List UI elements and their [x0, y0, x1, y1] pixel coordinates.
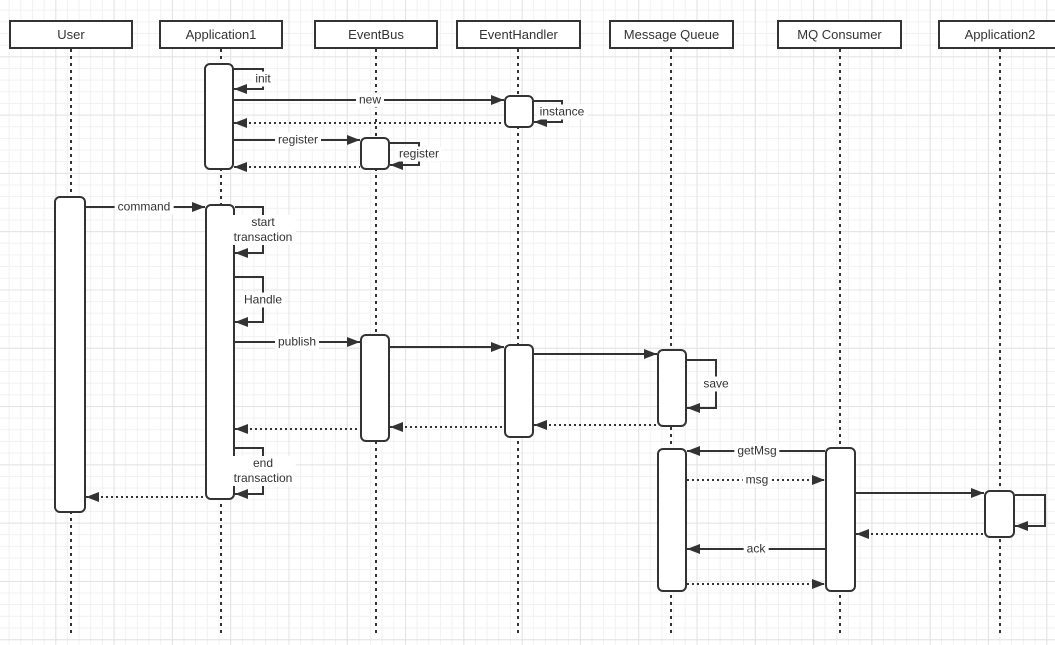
participant-label: User — [57, 27, 84, 42]
arrowhead-msg — [812, 475, 825, 485]
activation-eventhandler[interactable] — [504, 344, 534, 438]
activation-eventhandler[interactable] — [504, 95, 534, 128]
message-line-return-register[interactable] — [234, 166, 360, 168]
arrowhead-handler-to-queue — [644, 349, 657, 359]
participant-label: EventBus — [348, 27, 404, 42]
message-label-command[interactable]: command — [115, 200, 174, 215]
message-label-publish[interactable]: publish — [275, 335, 319, 350]
participant-label: Application2 — [965, 27, 1036, 42]
message-label-ack[interactable]: ack — [744, 542, 769, 557]
message-line-return-bus-app1[interactable] — [235, 428, 360, 430]
message-line-handler-to-queue[interactable] — [534, 353, 657, 355]
message-line-consumer-to-app2[interactable] — [856, 492, 984, 494]
message-label-end-transaction[interactable]: end transaction — [231, 456, 296, 486]
arrowhead-return-instance — [234, 118, 247, 128]
arrowhead-start-transaction — [235, 248, 248, 258]
message-label-handle[interactable]: Handle — [241, 292, 285, 307]
activation-user[interactable] — [54, 196, 86, 513]
activation-eventbus[interactable] — [360, 334, 390, 442]
arrowhead-new — [491, 95, 504, 105]
participant-label: Message Queue — [624, 27, 719, 42]
arrowhead-handle — [235, 317, 248, 327]
participant-application1[interactable]: Application1 — [159, 20, 283, 49]
message-line-return-queue-consumer[interactable] — [687, 583, 825, 585]
arrowhead-return-queue-handler — [534, 420, 547, 430]
arrowhead-app2-self — [1015, 521, 1028, 531]
message-line-return-instance[interactable] — [234, 122, 504, 124]
diagram-canvas: initnewinstanceregisterregistercommandst… — [0, 0, 1055, 645]
activation-mq-consumer[interactable] — [825, 447, 856, 592]
participant-eventbus[interactable]: EventBus — [314, 20, 438, 49]
arrowhead-save — [687, 403, 700, 413]
lifeline-application2 — [999, 49, 1001, 633]
message-label-start-transaction[interactable]: start transaction — [231, 215, 296, 245]
arrowhead-return-handler-bus — [390, 422, 403, 432]
participant-label: EventHandler — [479, 27, 558, 42]
message-label-register[interactable]: register — [275, 133, 321, 148]
message-line-bus-to-handler[interactable] — [390, 346, 504, 348]
arrowhead-return-register — [234, 162, 247, 172]
arrowhead-return-queue-consumer — [812, 579, 825, 589]
activation-application2[interactable] — [984, 490, 1015, 538]
message-line-return-app2-consumer[interactable] — [856, 533, 984, 535]
message-label-register-self[interactable]: register — [396, 147, 442, 162]
arrowhead-register-self — [390, 160, 403, 170]
arrowhead-command — [192, 202, 205, 212]
activation-message-queue[interactable] — [657, 349, 687, 427]
message-label-new[interactable]: new — [356, 93, 384, 108]
arrowhead-return-app1-user — [86, 492, 99, 502]
participant-user[interactable]: User — [9, 20, 133, 49]
message-label-init[interactable]: init — [252, 72, 273, 87]
message-line-return-handler-bus[interactable] — [390, 426, 504, 428]
activation-application1[interactable] — [204, 63, 234, 170]
participant-eventhandler[interactable]: EventHandler — [456, 20, 581, 49]
participant-label: Application1 — [186, 27, 257, 42]
message-line-return-app1-user[interactable] — [86, 496, 205, 498]
arrowhead-return-bus-app1 — [235, 424, 248, 434]
arrowhead-bus-to-handler — [491, 342, 504, 352]
arrowhead-ack — [687, 544, 700, 554]
participant-application2[interactable]: Application2 — [938, 20, 1055, 49]
participant-mq-consumer[interactable]: MQ Consumer — [777, 20, 902, 49]
message-label-save[interactable]: save — [700, 377, 731, 392]
arrowhead-publish — [347, 337, 360, 347]
message-label-instance[interactable]: instance — [537, 104, 588, 119]
message-line-return-queue-handler[interactable] — [534, 424, 657, 426]
arrowhead-return-app2-consumer — [856, 529, 869, 539]
arrowhead-getmsg — [687, 446, 700, 456]
activation-eventbus[interactable] — [360, 137, 390, 170]
activation-message-queue[interactable] — [657, 448, 687, 592]
arrowhead-consumer-to-app2 — [971, 488, 984, 498]
message-label-getmsg[interactable]: getMsg — [734, 444, 779, 459]
message-label-msg[interactable]: msg — [743, 473, 772, 488]
participant-label: MQ Consumer — [797, 27, 882, 42]
participant-message-queue[interactable]: Message Queue — [609, 20, 734, 49]
arrowhead-init — [234, 84, 247, 94]
arrowhead-register — [347, 135, 360, 145]
lifeline-eventhandler — [517, 49, 519, 633]
arrowhead-end-transaction — [235, 489, 248, 499]
